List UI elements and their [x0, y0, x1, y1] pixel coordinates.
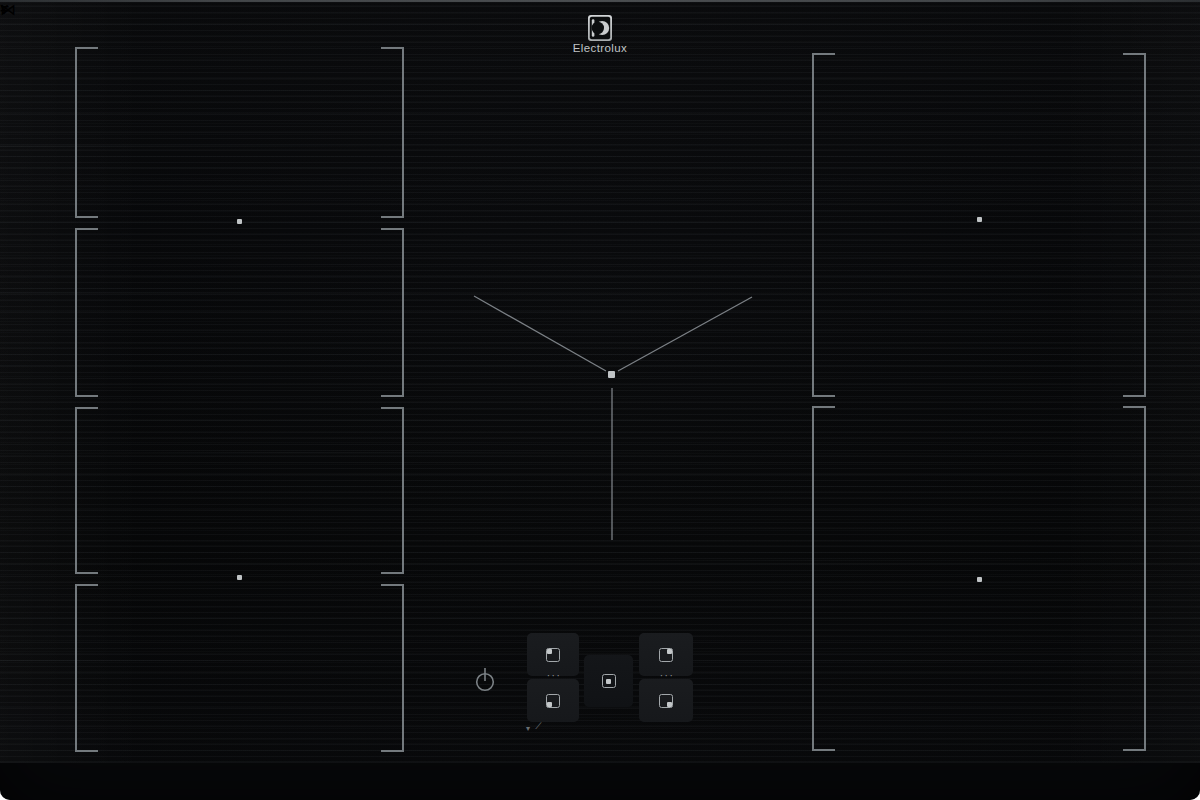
- triangle-down-icon[interactable]: ▾: [526, 724, 530, 733]
- ellipsis-separator: ···: [660, 674, 675, 678]
- zone-position-top-right-icon: [659, 648, 673, 662]
- electrolux-e-icon: [588, 15, 612, 41]
- glass-surface: [0, 0, 1200, 763]
- power-icon[interactable]: [474, 667, 496, 693]
- electrolux-logo-badge: [588, 15, 612, 41]
- zone-select-center-button[interactable]: [584, 655, 633, 707]
- ellipsis-separator: ···: [547, 674, 562, 678]
- hood-icon[interactable]: ʏ: [0, 0, 8, 18]
- zone-position-center-icon: [602, 674, 616, 688]
- zone-select-right-front-button[interactable]: [639, 679, 693, 722]
- zone-select-left-front-button[interactable]: [527, 679, 579, 722]
- induction-hob: Electrolux ··· ··· ▾ ∕ = ⋈ ʏ SENSE PRO: [0, 0, 1200, 800]
- electrolux-wordmark: Electrolux: [573, 42, 628, 54]
- zone-position-bottom-left-icon: [546, 694, 560, 708]
- zone-position-bottom-right-icon: [659, 694, 673, 708]
- slider-pen-icon[interactable]: ∕: [538, 721, 540, 730]
- zone-position-top-left-icon: [546, 648, 560, 662]
- hob-top-edge: [0, 0, 1200, 2]
